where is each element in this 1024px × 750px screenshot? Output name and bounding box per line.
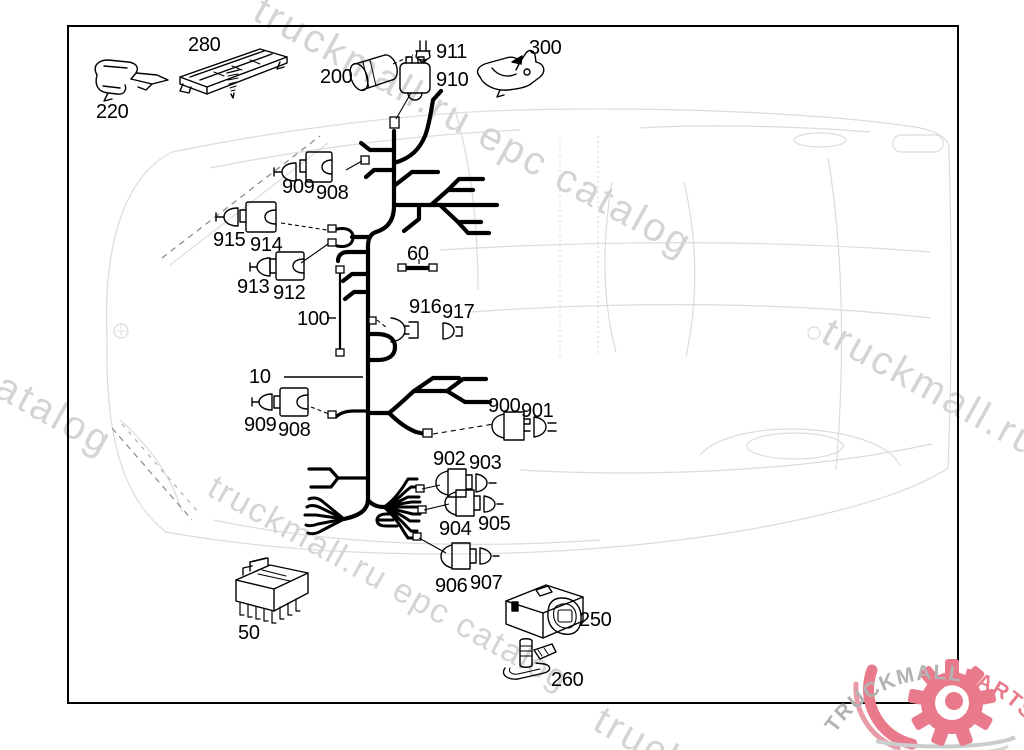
epc-diagram-page: truckmall.ru epc catalog truckmall.ru ep… — [0, 0, 1024, 750]
diagram-border — [67, 25, 959, 704]
watermark-text: truckmall.ru epc catalog — [586, 698, 1024, 750]
